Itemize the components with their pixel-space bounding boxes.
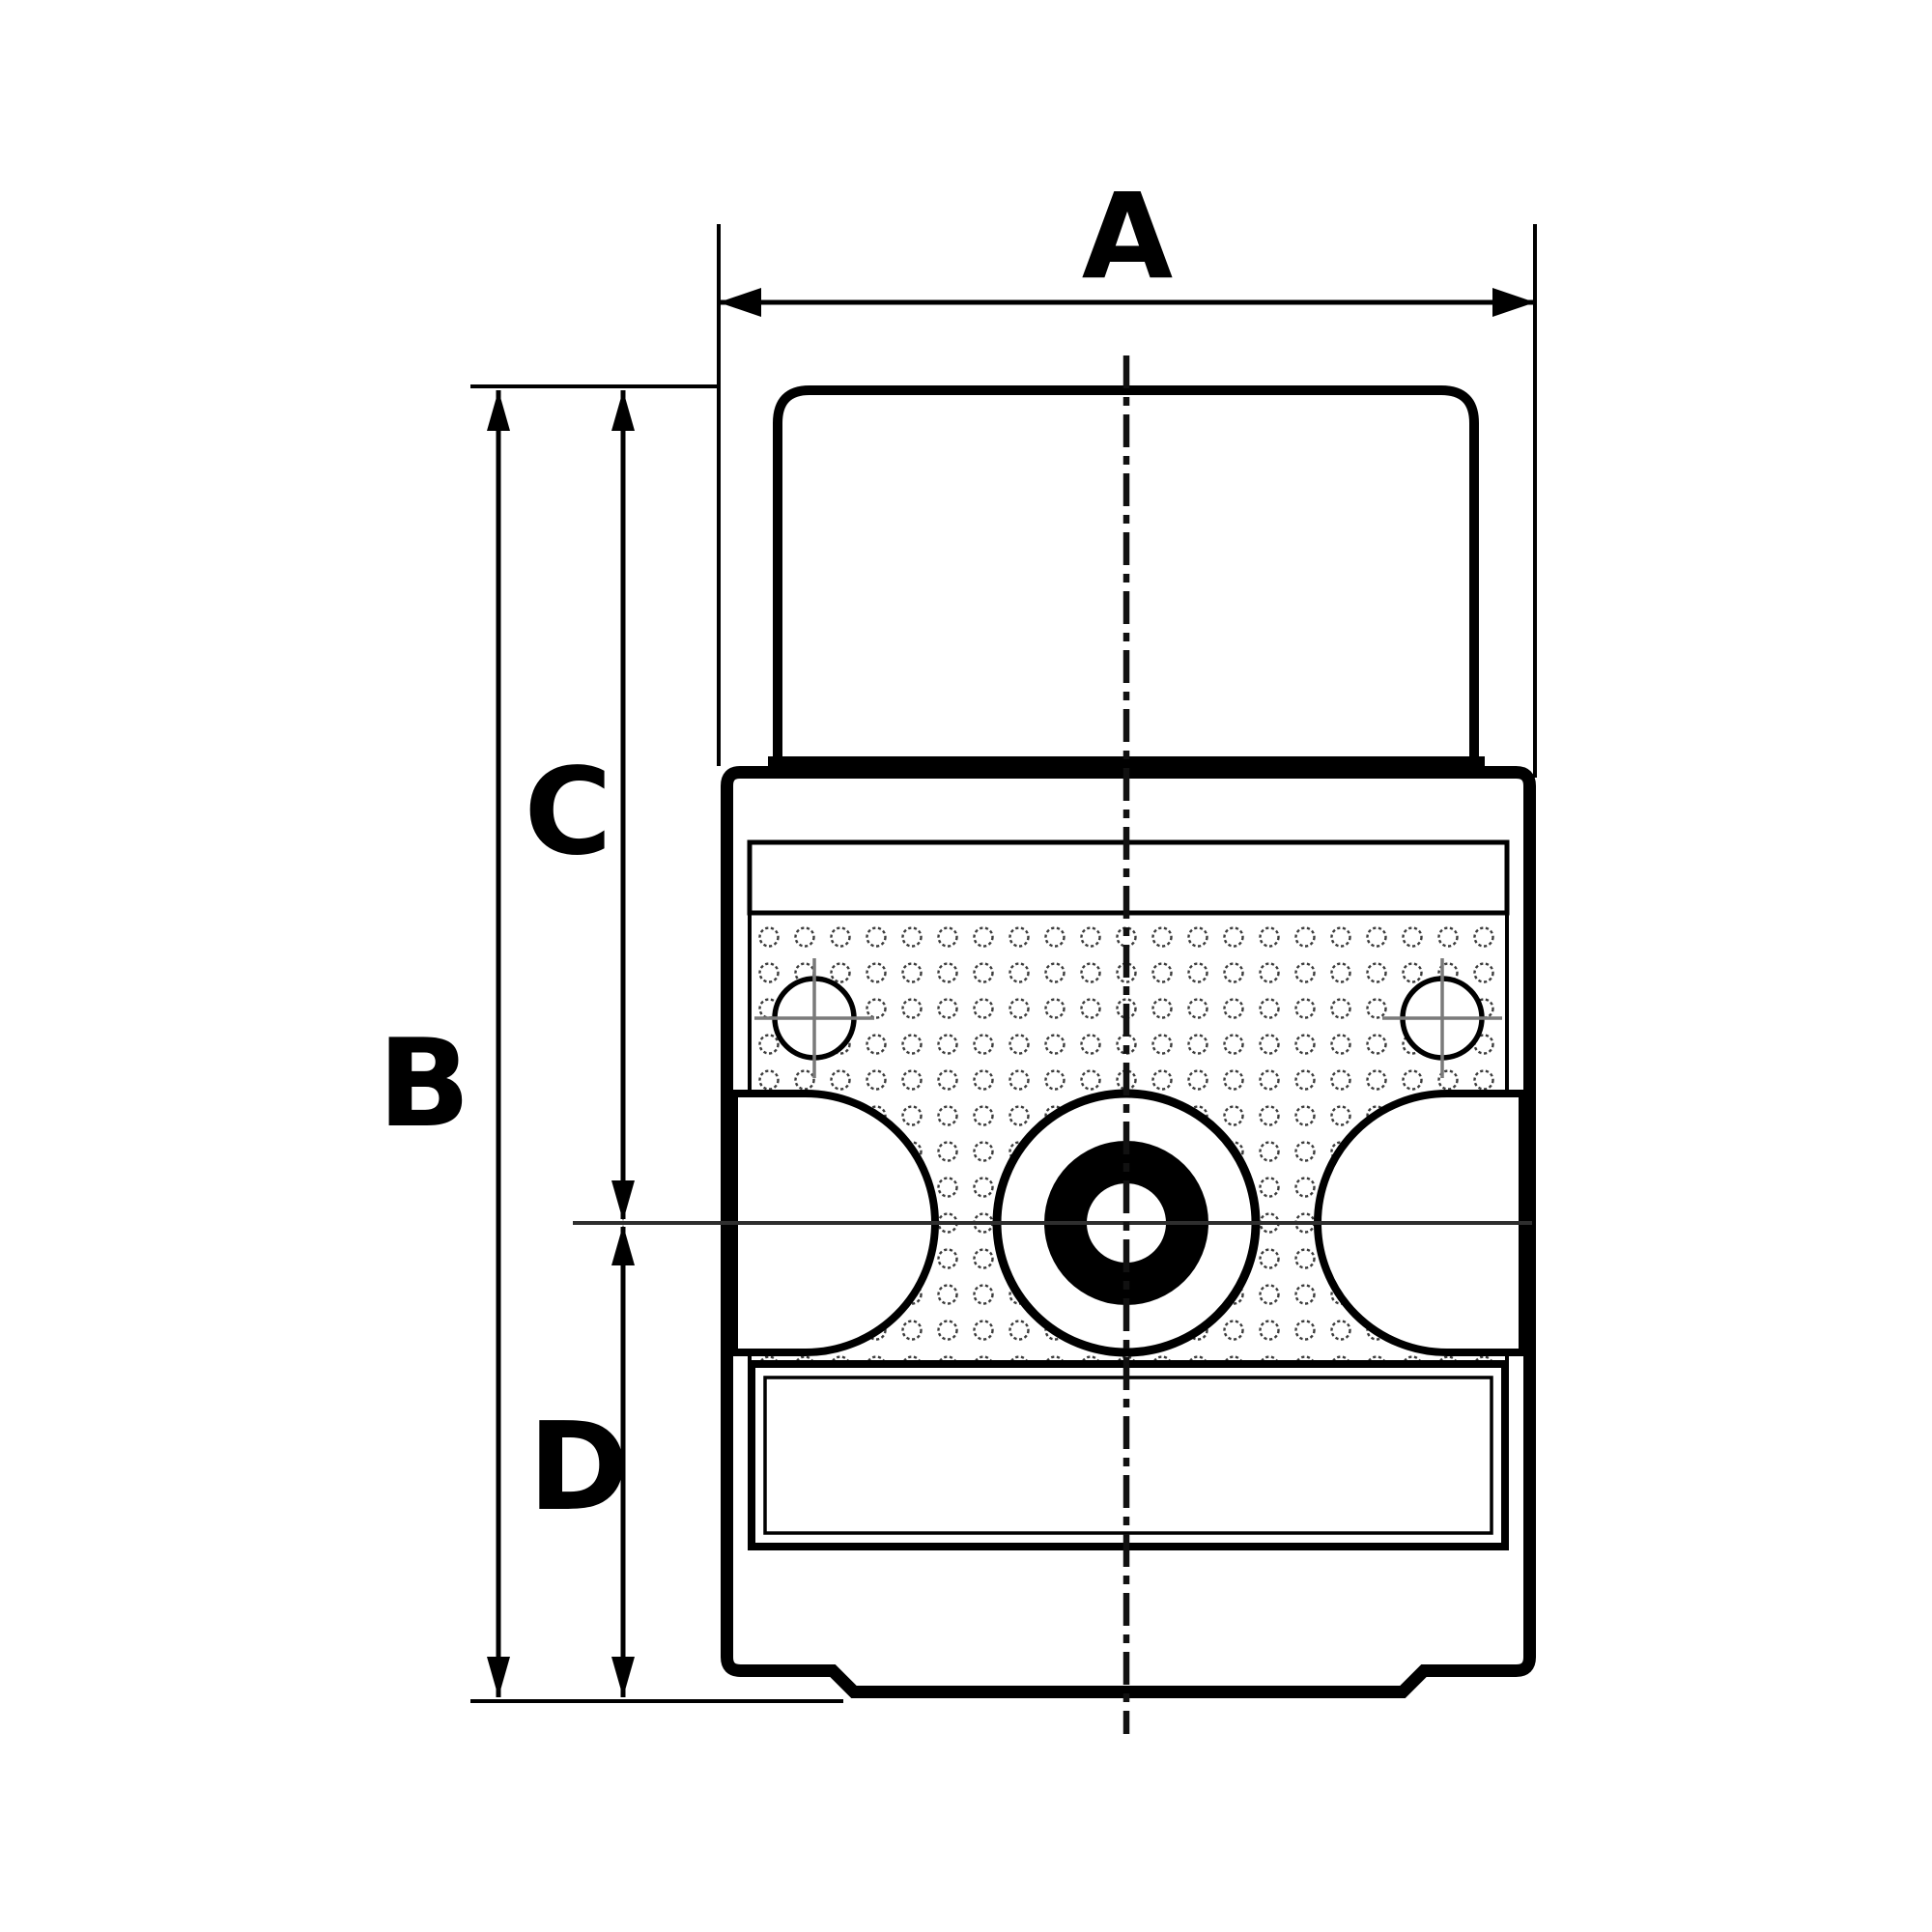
dim-a-label: A	[1082, 168, 1173, 305]
dim-c-arrow-top	[611, 390, 635, 431]
dim-a-arrow-right	[1492, 288, 1535, 317]
dim-b-arrow-top	[487, 390, 510, 431]
dim-b-arrow-bottom	[487, 1657, 510, 1697]
dim-c-arrow-bottom	[611, 1180, 635, 1221]
dim-b-label: B	[378, 1012, 470, 1154]
dim-a-arrow-left	[719, 288, 761, 317]
dim-d-arrow-bottom	[611, 1657, 635, 1697]
dimensional-diagram: A B C D	[0, 0, 1932, 1932]
drawing-canvas: A B C D	[0, 0, 1932, 1932]
dim-d-label: D	[528, 1396, 630, 1538]
dim-d-arrow-top	[611, 1225, 635, 1265]
dim-c-label: C	[524, 743, 611, 882]
